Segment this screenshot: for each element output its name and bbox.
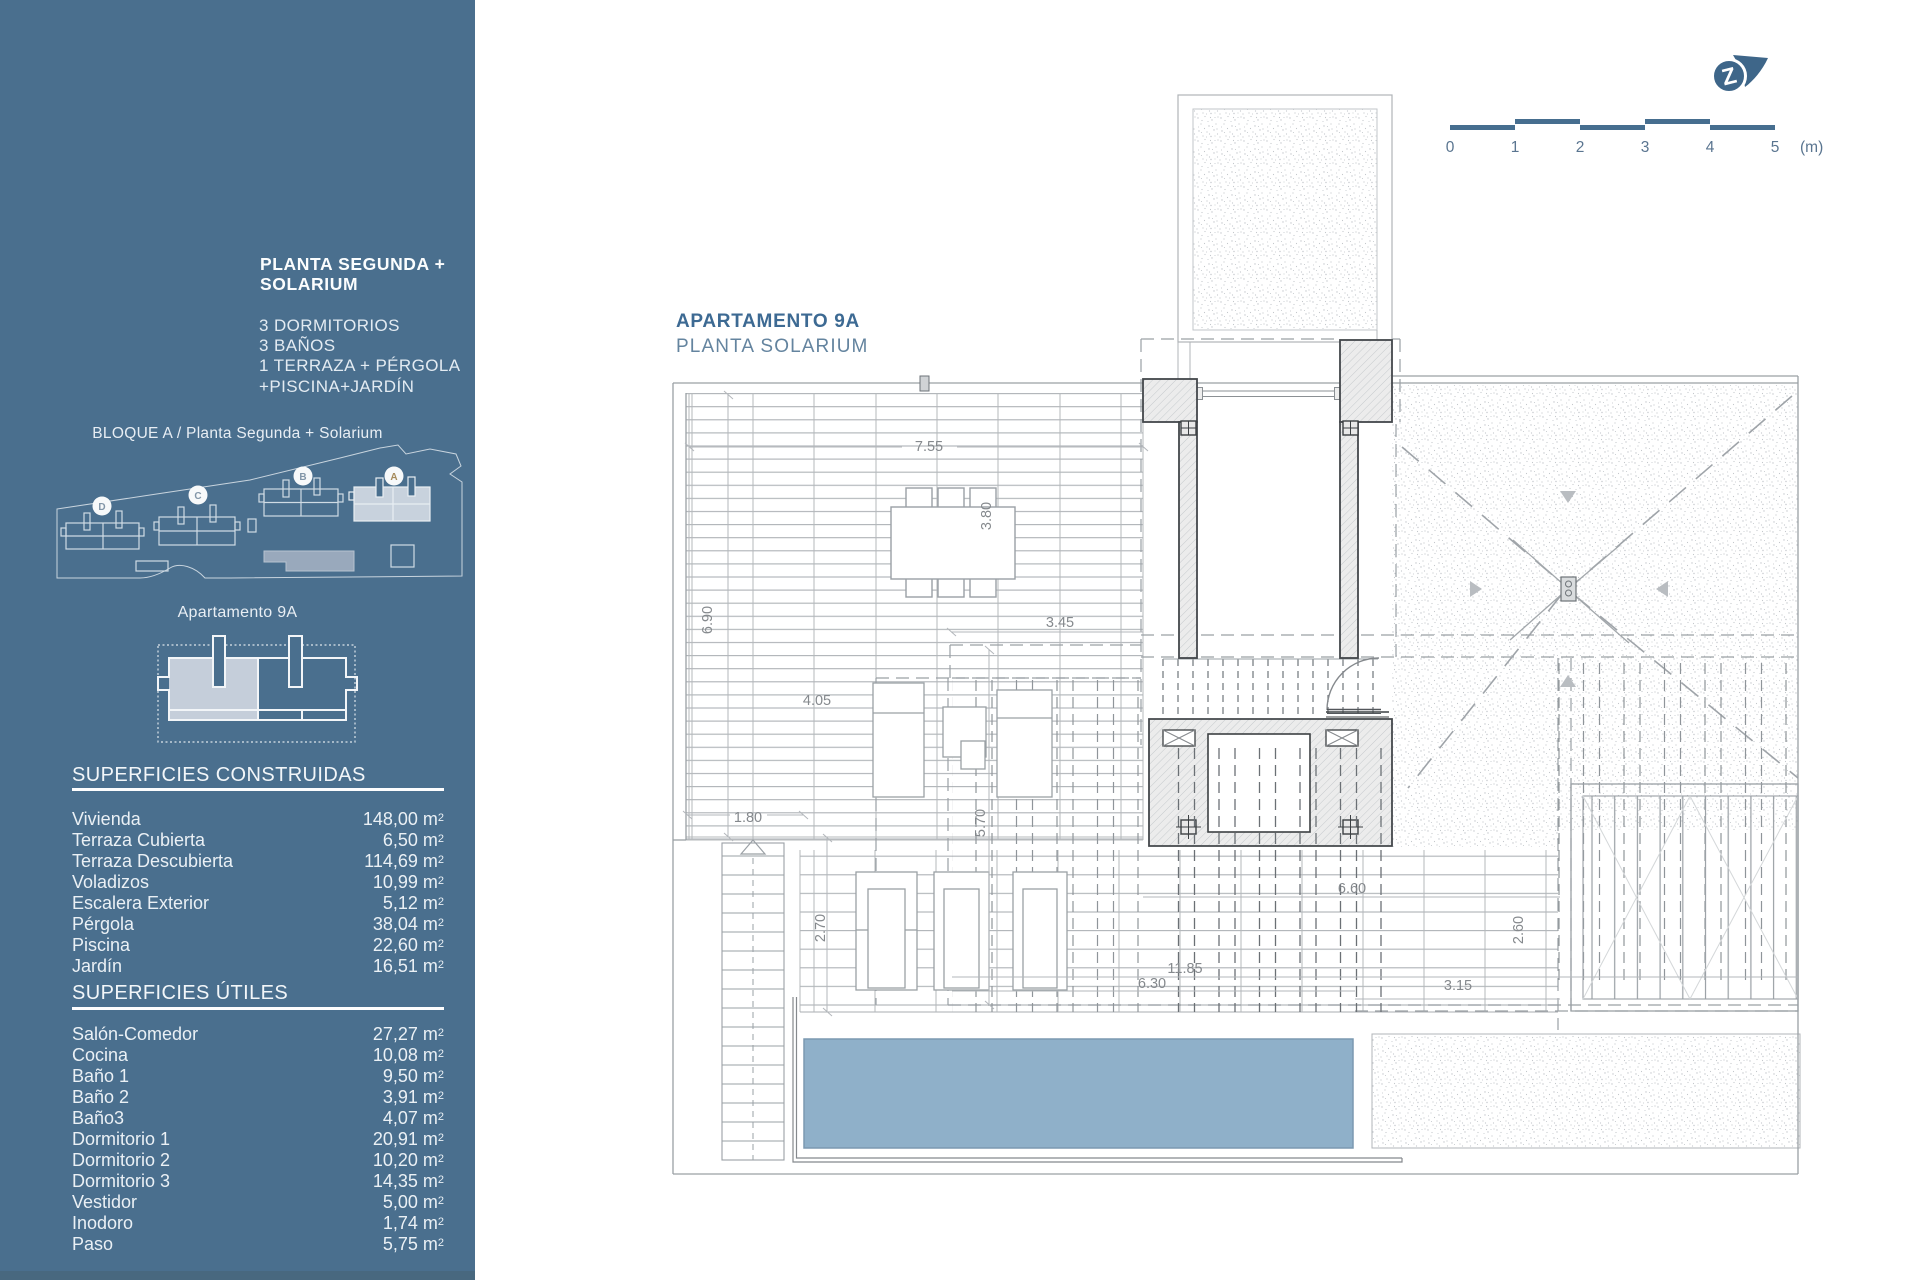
svg-text:6.90: 6.90 — [700, 606, 716, 634]
svg-text:1.80: 1.80 — [734, 810, 762, 826]
svg-text:5: 5 — [1771, 139, 1780, 156]
svg-text:4: 4 — [1706, 139, 1715, 156]
svg-text:7.55: 7.55 — [915, 439, 943, 455]
svg-text:2: 2 — [1576, 139, 1585, 156]
svg-text:11.85: 11.85 — [1167, 961, 1202, 977]
svg-text:C: C — [194, 491, 201, 502]
svg-text:D: D — [98, 502, 105, 513]
svg-text:6.30: 6.30 — [1138, 976, 1166, 992]
svg-text:3.15: 3.15 — [1444, 978, 1472, 994]
svg-text:3.45: 3.45 — [1046, 615, 1074, 631]
svg-text:1: 1 — [1511, 139, 1520, 156]
svg-text:APARTAMENTO 9A: APARTAMENTO 9A — [676, 311, 860, 332]
svg-text:3.80: 3.80 — [979, 502, 995, 530]
svg-text:PLANTA SOLARIUM: PLANTA SOLARIUM — [676, 336, 868, 357]
svg-text:B: B — [299, 472, 306, 483]
svg-text:0: 0 — [1446, 139, 1455, 156]
svg-text:3: 3 — [1641, 139, 1650, 156]
svg-text:6.60: 6.60 — [1338, 881, 1366, 897]
svg-text:A: A — [390, 472, 397, 483]
svg-text:4.05: 4.05 — [803, 693, 831, 709]
svg-text:5.70: 5.70 — [973, 809, 989, 837]
svg-text:(m): (m) — [1800, 139, 1823, 156]
svg-text:2.60: 2.60 — [1511, 916, 1527, 944]
